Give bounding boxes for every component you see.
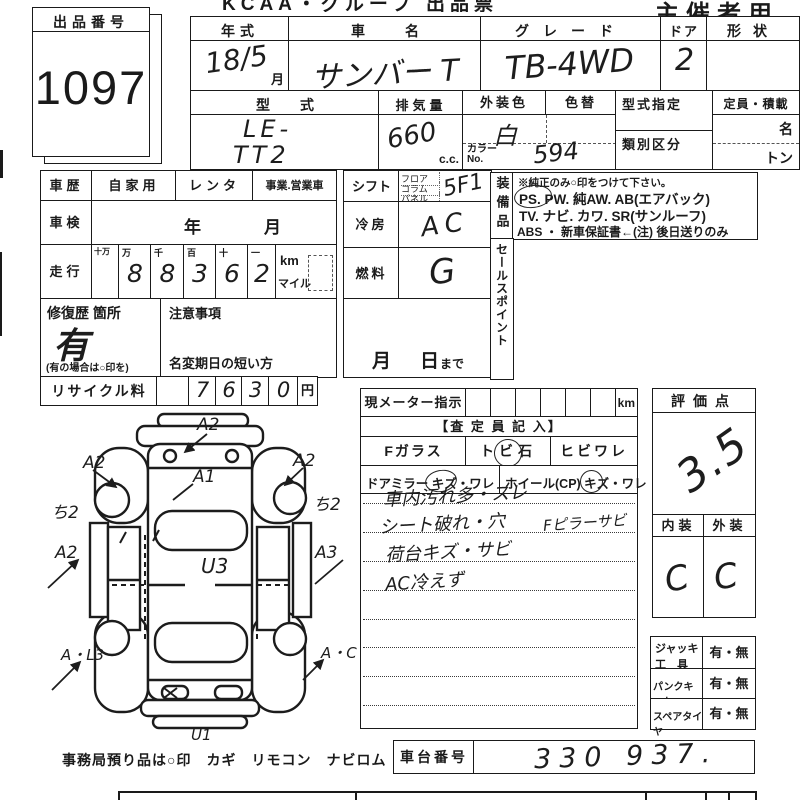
exterior-color-label: 外装色 [463,91,546,115]
history-commercial: 事業.営業車 [252,170,337,202]
model-code-line2: TT2 [233,141,290,169]
rename-deadline-label: 名変期日の短い方 [169,353,273,372]
windshield [155,511,247,550]
displacement-cell: 排気量 660 c.c. [378,90,464,170]
lot-box: 出品番号 1097 [32,7,150,157]
meter-box-1 [465,388,492,418]
grade-cell: グレード TB-4WD [480,16,662,92]
rename-date-cell: 月 日 まで [343,298,492,378]
mileage-label-cell: 走行 [40,244,93,300]
mileage-digit-10: 十 6 [215,244,249,300]
mileage-digit-1k: 千 8 [150,244,185,300]
damage-mark-front-bumper: A2 [196,415,219,435]
mileage-digit-1: 一 2 [247,244,277,300]
recycle-label-cell: リサイクル料 [40,376,158,406]
bottom-table-tick [118,792,120,800]
unit-km: km [280,253,299,268]
damage-arrow-rear-left [52,662,80,690]
interior-grade: C [661,557,693,601]
displacement-value: 660 [385,117,439,155]
chassis-label-cell: 車台番号 [393,740,475,774]
bottom-table-edge [118,791,757,793]
equipment-label-cell: 装備品 [490,172,514,240]
recycle-digit-1: 7 [188,376,217,406]
top-title-strip: KCAA・グループ 出品票 [222,0,592,12]
capacity-cell: 定員・積載 名 トン [712,90,800,170]
sheet-title: KCAA・グループ 出品票 [222,0,498,12]
rename-made: まで [440,355,464,372]
repair-note: (有の場合は○印を) [46,359,129,374]
fuel-label-cell: 燃料 [343,247,400,300]
damage-mark-front-right: A2 [292,451,315,471]
scan-artifact [0,150,3,178]
shift-label-cell: シフト [343,170,400,203]
mileage-digit-100k: 十万 [91,244,120,300]
door-panel-right [257,527,289,630]
meter-label-cell: 現メーター指示 [360,388,467,418]
exterior-color-cell: 外装色 色替 白 カラー No. 594 [462,90,617,170]
shift-value-cell: フロア コラム パネル 5F1 [398,170,492,203]
spare-tire-value-cell: 有・無 [702,698,756,730]
assessor-header-cell: 【査 定 員 記 入】 [360,416,638,438]
bottom-table-tick [355,792,357,800]
assessor-notes-cell: 車内汚れ多・スレ シート破れ・穴 Fピラーサビ 荷台キズ・サビ AC冷えず [360,493,638,729]
grade-label: グレード [481,17,661,41]
designation-cell: 型式指定 [615,90,714,132]
capacity-label: 定員・積載 [713,91,799,115]
displacement-unit: c.c. [439,152,459,166]
year-value: 18/5 [203,39,270,80]
year-cell: 年式 18/5 月 [190,16,290,92]
spare-tire-label-cell: スペアタイヤ [650,698,704,730]
wheel-front-left [95,483,129,517]
exterior-label-cell: 外装 [703,514,756,538]
model-code-line1: LE- [243,115,292,143]
damage-arrow-mid-left [48,560,78,588]
car-diagram-svg: A2 A1 A2 A2 ち2 ち2 A2 A3 U3 A・L3 A・C U1 [25,408,360,753]
rear-window [155,623,247,662]
damage-mark-rear-left: A・L3 [60,646,104,664]
sill-left [90,523,108,617]
door-label: ドア [661,17,707,41]
color-no-label: カラー No. [467,145,497,165]
door-value: 2 [675,43,694,78]
meter-box-4 [540,388,567,418]
auction-sheet: KCAA・グループ 出品票 主催者用 出品番号 1097 年式 18/5 月 車… [0,0,800,800]
mileage-digit-100: 百 3 [183,244,217,300]
assessor-note-3: 荷台キズ・サビ [384,535,511,568]
puncture-kit-label-cell: パンクキット [650,668,704,700]
aircon-label-cell: 冷房 [343,201,400,249]
classification-cell: 類別区分 [615,130,714,170]
exterior-value-cell: C [703,536,756,618]
evaluation-score-cell: 3.5 [652,412,756,516]
chassis-value-cell: 330 937. [473,740,755,774]
inspection-label-cell: 車検 [40,200,93,246]
fuel-value-cell: G [398,247,492,300]
bottom-table-tick [728,792,730,800]
recycle-digit-4: 0 [268,376,299,406]
month-unit: 月 [271,69,284,88]
meter-box-2 [490,388,517,418]
crack-cell: ヒビワレ [550,436,638,467]
model-code-cell: 型式 LE- TT2 [190,90,380,170]
recycle-blank-cell [156,376,190,406]
equipment-content-cell: ※純正のみ○印をつけて下さい。 PS. PW. 純AW. AB(エアバック) T… [512,172,758,240]
rename-month: 月 [372,346,391,373]
interior-value-cell: C [652,536,705,618]
unit-mile: マイル [278,275,311,291]
meter-unit-cell: km [615,388,638,418]
history-rental: レンタ [175,170,254,202]
damage-mark-rear: U1 [191,726,212,744]
grade-value: TB-4WD [504,41,635,88]
recycle-digit-2: 6 [215,376,243,406]
meter-box-5 [565,388,592,418]
exterior-grade: C [711,555,741,599]
front-marker-left [164,450,176,462]
meter-box-6 [590,388,617,418]
damage-arrow-mid-right [315,560,343,584]
lot-number: 1097 [33,60,149,115]
evaluation-score: 3.5 [667,418,758,503]
damage-mark-mid-right: A3 [314,543,337,563]
jack-tools-label-cell: ジャッキ 工 具 [650,636,704,670]
model-code-label: 型式 [191,91,379,115]
damage-mark-mid-left: A2 [54,543,77,563]
door-cell: ドア 2 [660,16,708,92]
damage-mark-front-left: A2 [82,453,105,473]
color-change-label: 色替 [546,91,616,115]
history-label-cell: 車歴 [40,170,93,202]
rename-day: 日 [420,346,439,373]
history-private: 自家用 [91,170,177,202]
chassis-number: 330 937. [534,738,719,775]
equipment-line3: ABS ・ 新車保証書←(注) 後日送りのみ [517,223,728,240]
stone-chip-cell: トビ石 [465,436,552,467]
shape-cell: 形状 [706,16,800,92]
assessor-note-4: AC冷えず [384,565,465,596]
caution-cell: 注意事項 名変期日の短い方 [160,298,337,378]
displacement-label: 排気量 [379,91,463,115]
bottom-table-tick [705,792,707,800]
rear-bumper [141,700,259,716]
inspection-year: 年 [184,213,201,238]
puncture-kit-value-cell: 有・無 [702,668,756,700]
wheel-front-right [274,482,306,514]
damage-mark-left-side: ち2 [51,503,79,523]
mileage-unit-cell: km マイル [275,244,337,300]
aircon-value: AC [419,207,471,243]
car-name-label: 車名 [289,17,481,41]
capacity-tons: トン [765,148,793,168]
year-label: 年式 [191,17,289,41]
sales-point-label-cell: セールスポイント [490,238,514,380]
aircon-value-cell: AC [398,201,492,249]
classification-label: 類別区分 [616,131,713,153]
wheel-kizu-circle [580,470,603,493]
meter-box-3 [515,388,542,418]
bottom-table-tick [755,792,757,800]
jack-tools-value-cell: 有・無 [702,636,756,670]
inspection-month: 月 [264,213,281,238]
color-no-value: 594 [532,137,580,170]
designation-label: 型式指定 [616,91,713,113]
door-panel-left [108,527,140,630]
damage-mark-right-side: ち2 [313,495,341,515]
fuel-value: G [427,251,457,294]
equipment-line2: TV. ナビ. カワ. SR(サンルーフ) [519,205,706,225]
damage-mark-hood: A1 [192,467,215,487]
front-glass-cell: Fガラス [360,436,467,467]
scan-artifact [0,252,2,336]
evaluation-header-cell: 評価点 [652,388,756,414]
caution-label: 注意事項 [161,299,336,322]
inspection-value-cell: 年 月 [91,200,337,246]
mileage-digit-10k: 万 8 [118,244,152,300]
office-custody-note: 事務局預り品は○印 カギ リモコン ナビロム [62,750,386,770]
shape-label: 形状 [707,17,799,41]
mileage-tick-box [308,255,333,291]
lot-label: 出品番号 [33,8,149,32]
assessor-note-2: シート破れ・穴 [378,507,505,540]
shift-value: 5F1 [441,169,486,202]
capacity-persons: 名 [779,119,793,139]
interior-label-cell: 内装 [652,514,705,538]
recycle-unit-cell: 円 [297,376,318,406]
damage-mark-center: U3 [201,554,228,578]
tail-light-right [215,686,242,699]
front-marker-right [226,450,238,462]
sill-right [293,523,311,617]
repair-history-cell: 修復歴 箇所 有 (有の場合は○印を) [40,298,162,378]
car-name-cell: 車名 サンバー T [288,16,482,92]
damage-mark-rear-right: A・C [320,644,357,662]
bottom-table-tick [645,792,647,800]
wheel-rear-right [274,623,306,655]
recycle-digit-3: 3 [241,376,270,406]
capacity-dashed [713,143,799,144]
